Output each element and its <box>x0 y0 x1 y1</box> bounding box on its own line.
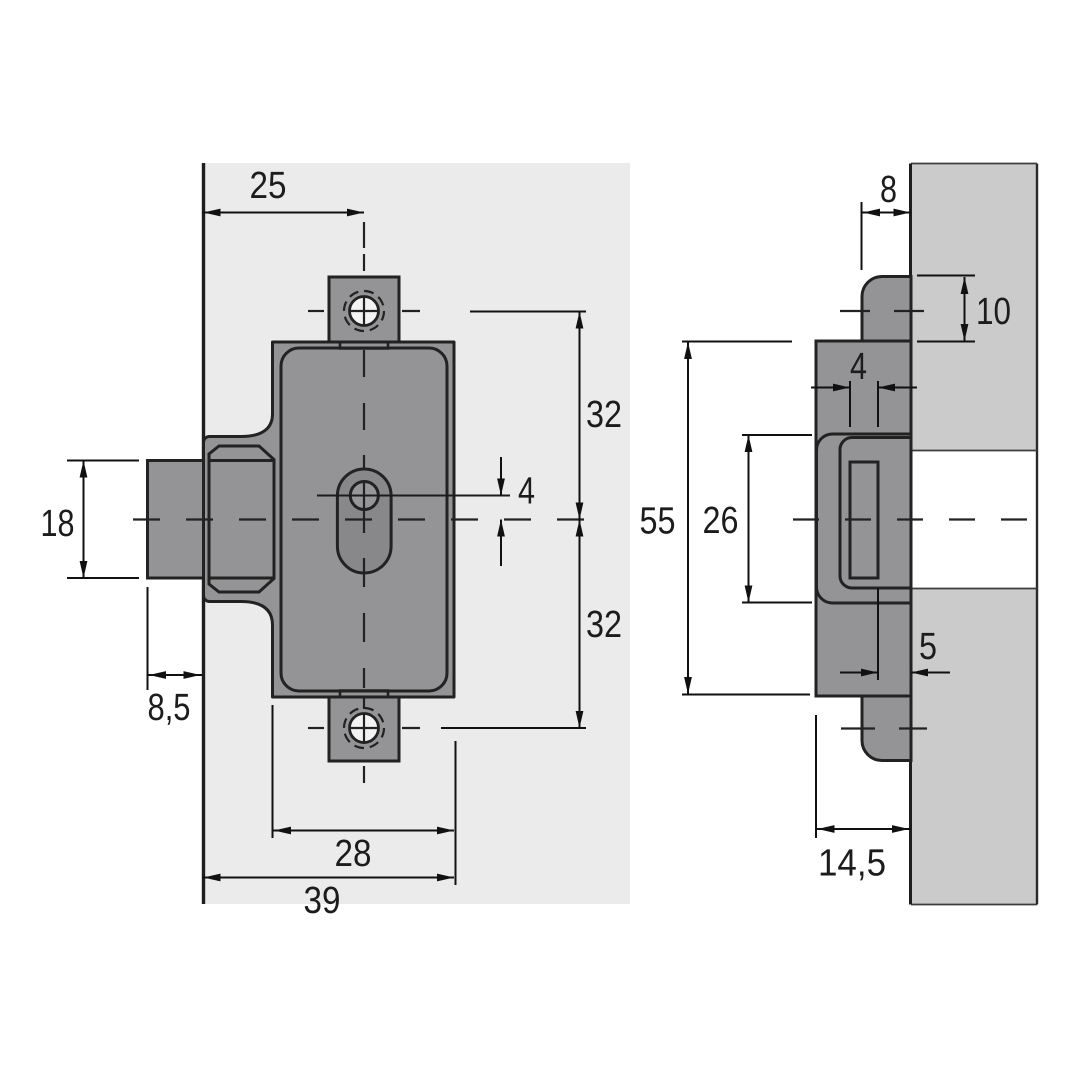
svg-text:26: 26 <box>703 500 739 542</box>
svg-text:14,5: 14,5 <box>818 843 886 885</box>
svg-text:4: 4 <box>518 471 535 513</box>
svg-text:25: 25 <box>250 165 287 207</box>
svg-text:8: 8 <box>880 169 897 211</box>
svg-text:10: 10 <box>976 291 1011 333</box>
svg-text:55: 55 <box>640 501 676 543</box>
svg-text:4: 4 <box>850 346 867 388</box>
svg-text:28: 28 <box>335 833 372 875</box>
svg-text:32: 32 <box>586 394 622 436</box>
svg-text:8,5: 8,5 <box>148 687 191 729</box>
svg-text:32: 32 <box>586 604 622 646</box>
svg-text:18: 18 <box>41 503 75 545</box>
svg-text:5: 5 <box>919 626 937 668</box>
svg-text:39: 39 <box>304 880 341 922</box>
